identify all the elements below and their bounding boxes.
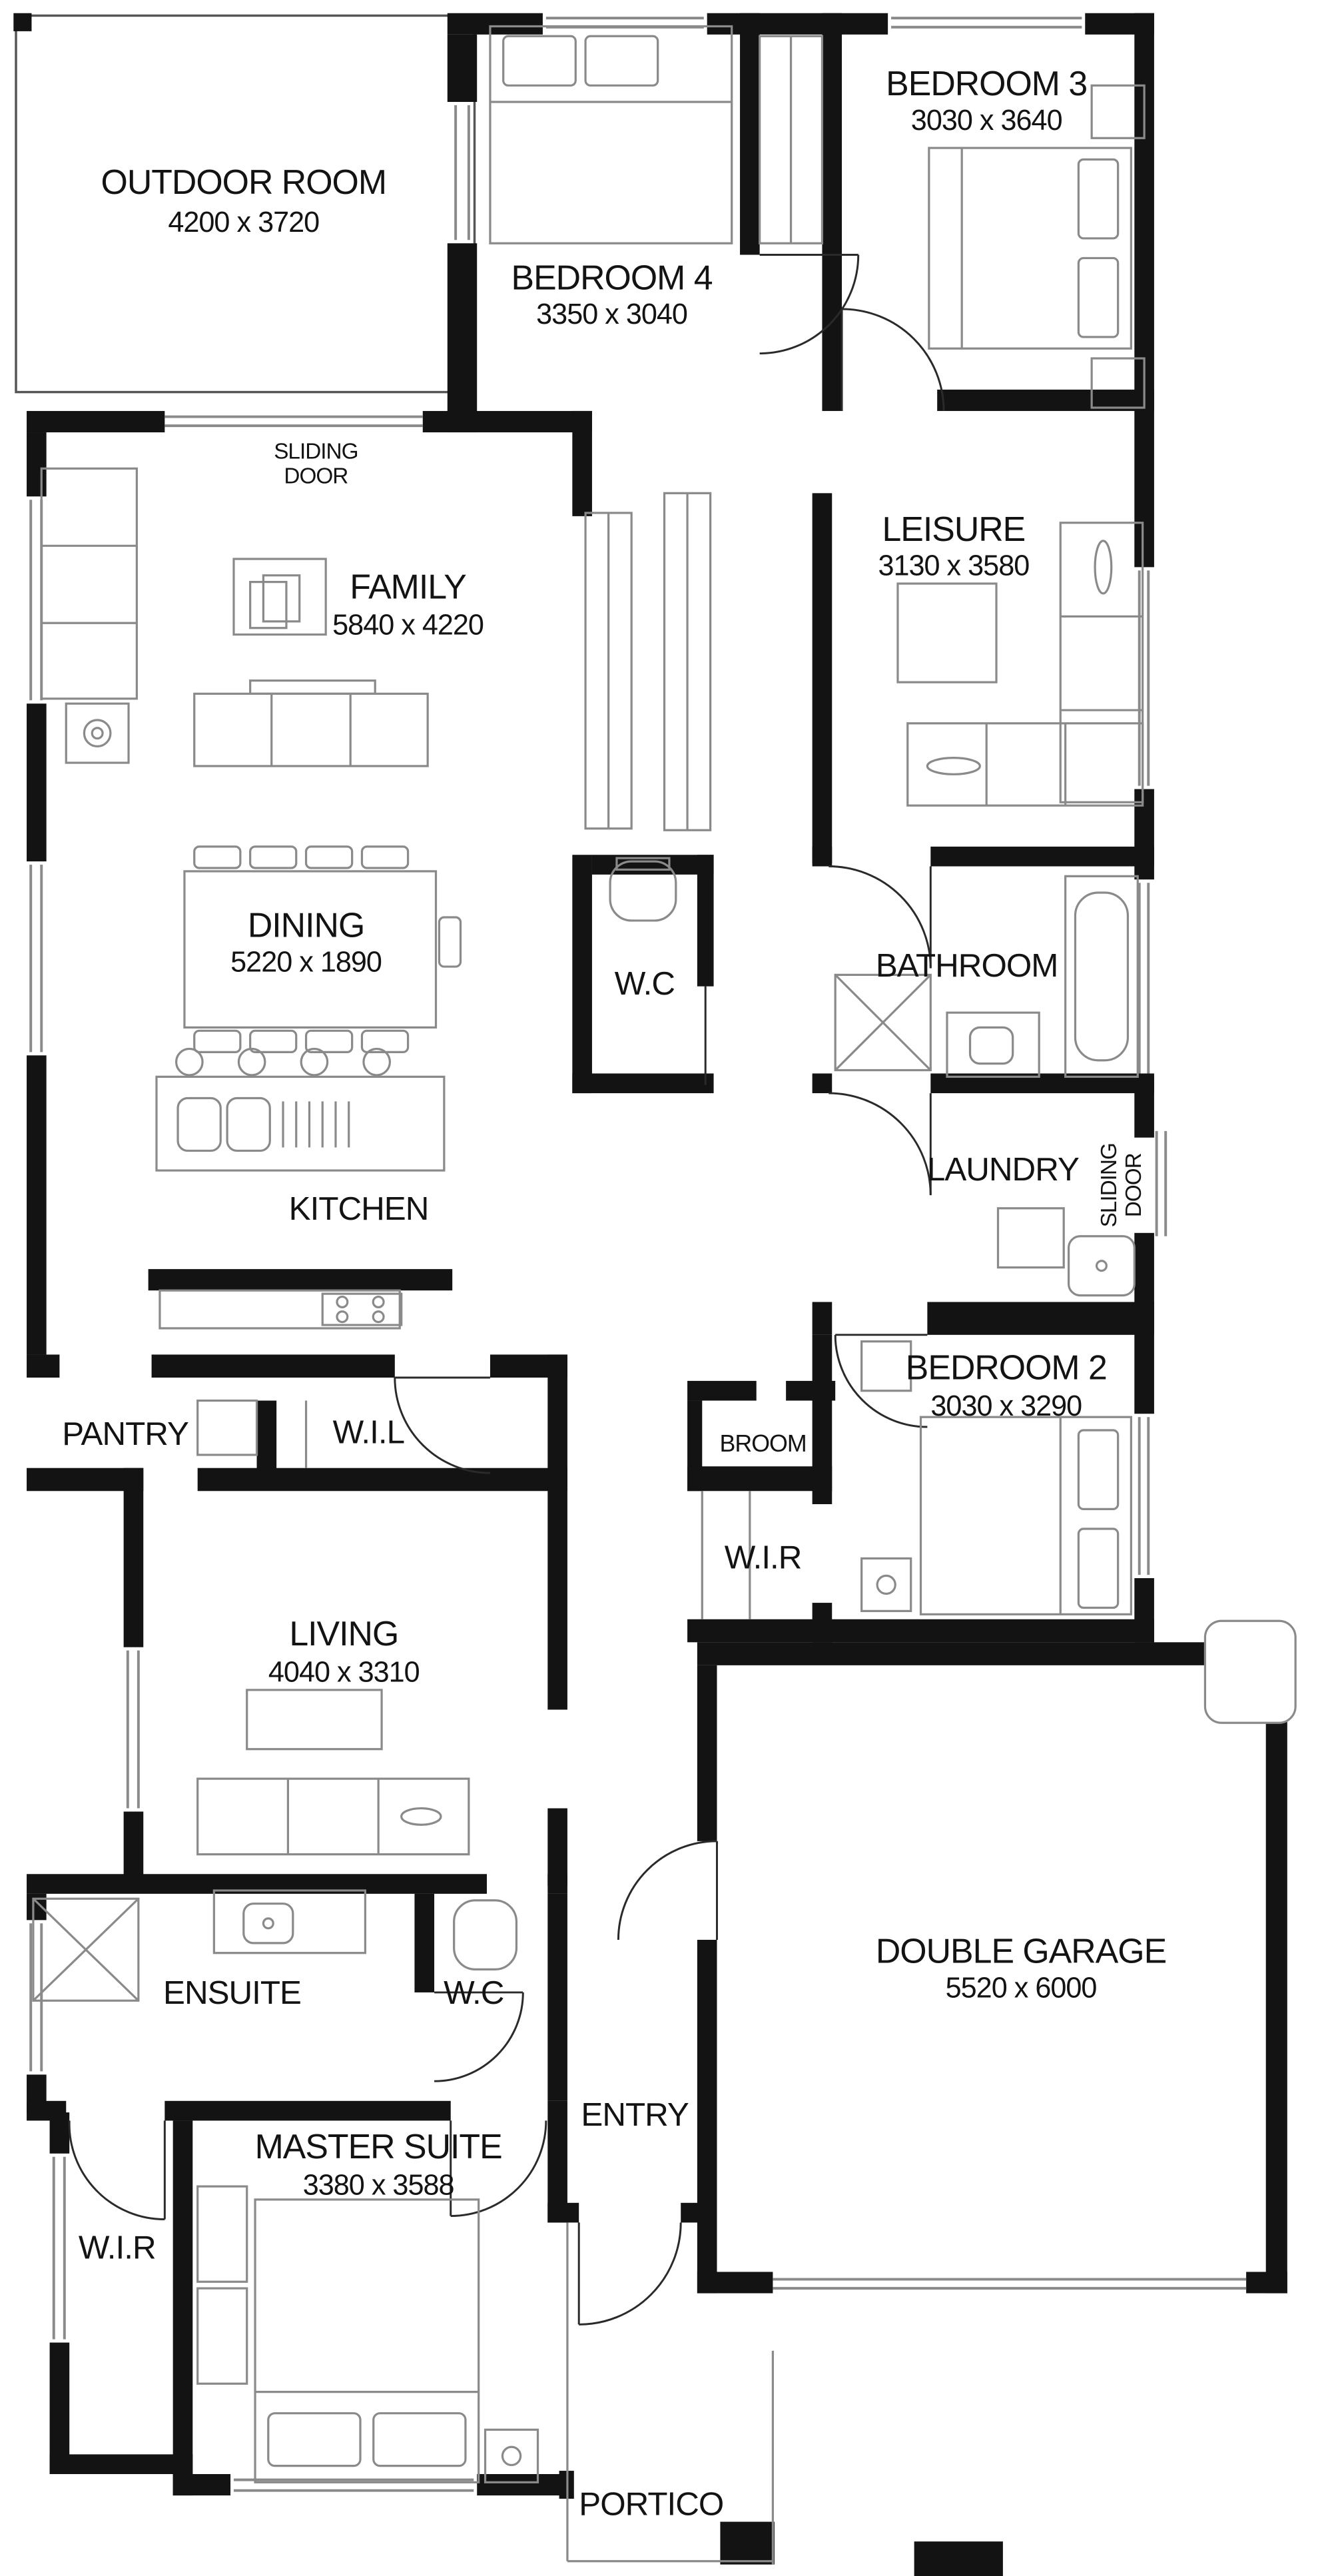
- label-family: FAMILY: [350, 567, 466, 606]
- label-kitchen: KITCHEN: [289, 1190, 429, 1227]
- label-wil: W.I.L: [333, 1414, 405, 1451]
- label-wir-mid: W.I.R: [725, 1539, 802, 1575]
- kitchen-island-icon: [157, 1049, 444, 1170]
- tv-unit-icon-family: [194, 681, 428, 766]
- label-sliding-door-laundry-1: SLIDING: [1097, 1143, 1122, 1227]
- label-bedroom2-dims: 3030 x 3290: [930, 1390, 1082, 1422]
- cooktop-bench-icon: [160, 1290, 402, 1328]
- label-dining-dims: 5220 x 1890: [230, 946, 382, 978]
- water-tank-icon: [1205, 1621, 1295, 1723]
- label-garage: DOUBLE GARAGE: [876, 1932, 1166, 1970]
- linen-cupboards-icon: [585, 493, 711, 830]
- outdoor-room-outline: [16, 15, 475, 392]
- washer-icon-laundry: [998, 1208, 1064, 1268]
- wardrobe-icon-hall: [760, 36, 823, 243]
- label-garage-dims: 5520 x 6000: [946, 1972, 1097, 2004]
- floor-plan: OUTDOOR ROOM 4200 x 3720 SLIDING DOOR BE…: [0, 0, 1332, 2576]
- label-bathroom: BATHROOM: [876, 947, 1058, 984]
- label-living-dims: 4040 x 3310: [268, 1657, 420, 1689]
- label-outdoor-room: OUTDOOR ROOM: [101, 163, 387, 201]
- tv-unit-icon-living: [198, 1779, 469, 1855]
- label-wir-bottom: W.I.R: [79, 2230, 156, 2266]
- label-entry: ENTRY: [581, 2096, 688, 2133]
- label-pantry: PANTRY: [62, 1416, 188, 1452]
- label-bedroom2: BEDROOM 2: [906, 1348, 1107, 1386]
- sofa-icon-family: [41, 468, 137, 763]
- label-bedroom4: BEDROOM 4: [511, 258, 713, 296]
- furniture: [33, 26, 1295, 2564]
- label-bedroom3: BEDROOM 3: [886, 64, 1087, 103]
- label-living: LIVING: [289, 1614, 398, 1653]
- bed-icon-master: [198, 2186, 538, 2482]
- bathtub-icon: [1066, 876, 1138, 1076]
- label-portico: PORTICO: [579, 2486, 723, 2523]
- vanity-icon-ensuite: [214, 1891, 365, 1953]
- label-ensuite: ENSUITE: [163, 1974, 301, 2011]
- label-dining: DINING: [248, 906, 364, 945]
- labels: OUTDOOR ROOM 4200 x 3720 SLIDING DOOR BE…: [62, 64, 1166, 2523]
- trough-icon-laundry: [1069, 1236, 1135, 1296]
- shower-icon-bathroom: [835, 975, 930, 1070]
- coffee-table-icon-living: [247, 1690, 382, 1749]
- label-leisure: LEISURE: [882, 510, 1025, 548]
- vanity-icon-bathroom: [947, 1013, 1039, 1076]
- label-outdoor-room-dims: 4200 x 3720: [168, 207, 319, 238]
- label-wc-mid: W.C: [615, 965, 675, 1002]
- floor-plan-drawing: OUTDOOR ROOM 4200 x 3720 SLIDING DOOR BE…: [0, 0, 1332, 2576]
- label-master-suite: MASTER SUITE: [255, 2127, 502, 2166]
- shower-icon-ensuite: [33, 1899, 139, 2000]
- pantry-shelf-icon: [198, 1401, 306, 1468]
- label-broom: BROOM: [720, 1430, 807, 1457]
- toilet-icon-wc-bottom: [454, 1901, 517, 1970]
- label-sliding-door-laundry-2: DOOR: [1122, 1153, 1146, 1217]
- label-sliding-door-top-1: SLIDING: [274, 440, 358, 464]
- label-master-suite-dims: 3380 x 3588: [303, 2169, 454, 2201]
- label-bedroom4-dims: 3350 x 3040: [536, 298, 687, 330]
- label-bedroom3-dims: 3030 x 3640: [911, 105, 1062, 137]
- label-leisure-dims: 3130 x 3580: [878, 550, 1029, 582]
- label-family-dims: 5840 x 4220: [332, 610, 484, 642]
- coffee-table-icon-family: [234, 559, 326, 635]
- label-sliding-door-top-2: DOOR: [284, 464, 348, 489]
- label-wc-bottom: W.C: [444, 1974, 503, 2011]
- label-laundry: LAUNDRY: [927, 1151, 1079, 1188]
- bed-icon-bed4: [490, 26, 732, 243]
